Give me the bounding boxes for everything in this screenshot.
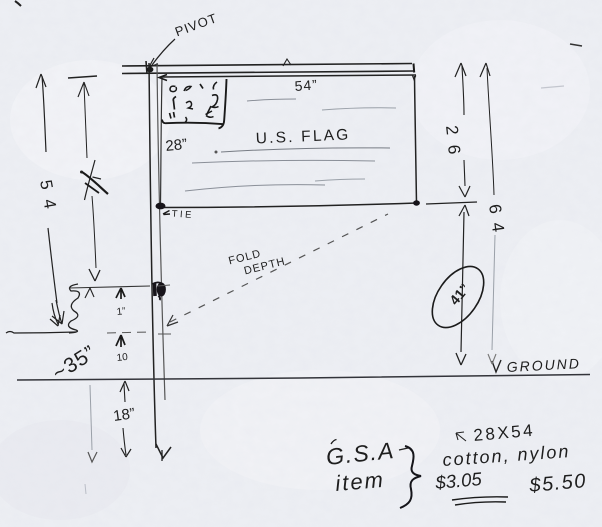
svg-text:TIE: TIE — [171, 209, 194, 222]
svg-text:$3.05: $3.05 — [434, 468, 484, 493]
svg-text:28”: 28” — [165, 136, 188, 155]
svg-text:item: item — [334, 467, 386, 496]
svg-text:1”: 1” — [116, 306, 126, 318]
svg-text:26: 26 — [442, 124, 465, 165]
svg-text:54”: 54” — [294, 76, 318, 94]
svg-text:10: 10 — [116, 352, 129, 364]
svg-text:18”: 18” — [112, 405, 136, 425]
